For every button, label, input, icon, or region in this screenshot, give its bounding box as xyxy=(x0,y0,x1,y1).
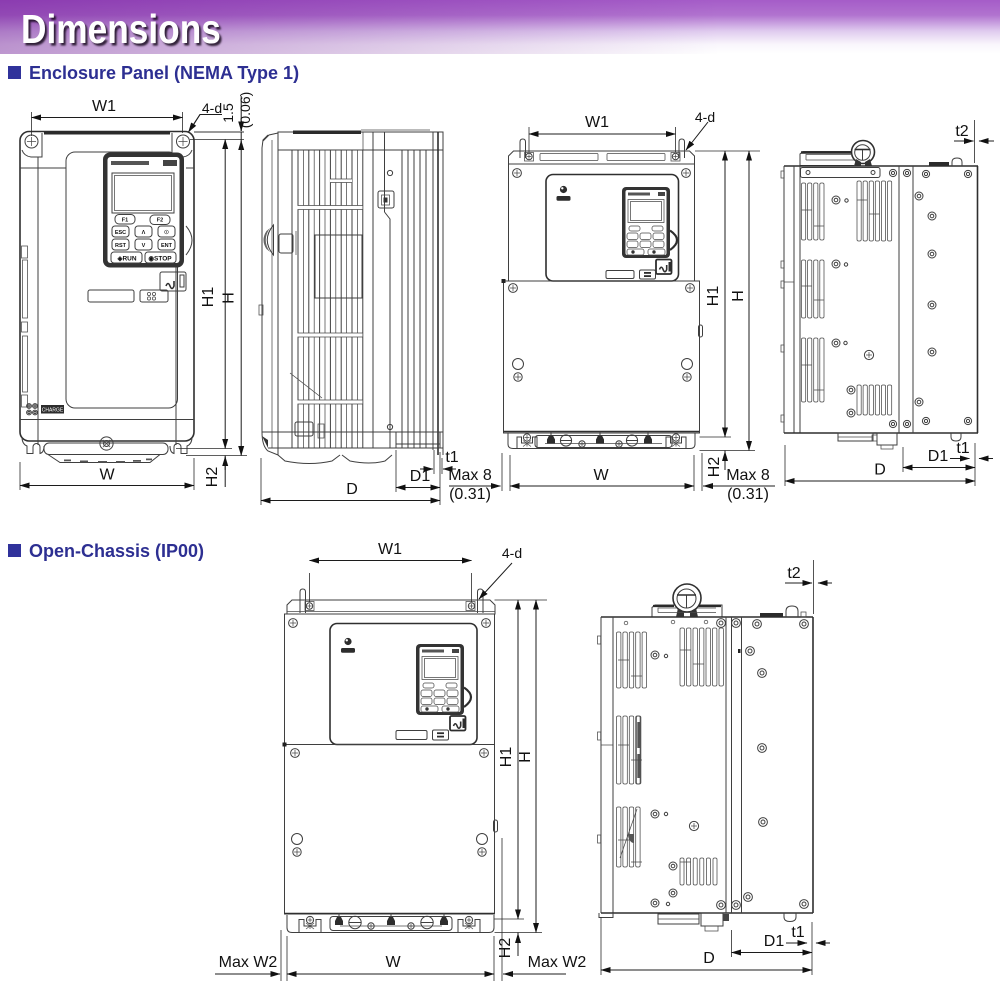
svg-text:D: D xyxy=(703,950,715,967)
svg-text:t1: t1 xyxy=(791,924,804,941)
svg-text:(0.31): (0.31) xyxy=(727,486,769,503)
svg-text:F2: F2 xyxy=(157,218,163,224)
svg-text:V: V xyxy=(142,243,146,249)
svg-text:Max 8: Max 8 xyxy=(448,467,492,484)
svg-text:D: D xyxy=(346,481,358,498)
svg-text:H1: H1 xyxy=(498,747,515,768)
svg-text:D: D xyxy=(874,462,886,479)
svg-text:t1: t1 xyxy=(956,440,969,457)
svg-text:ENT: ENT xyxy=(161,243,173,249)
svg-text:t2: t2 xyxy=(787,565,800,582)
svg-text:4-d: 4-d xyxy=(502,545,522,561)
svg-text:ESC: ESC xyxy=(115,230,126,236)
svg-text:H: H xyxy=(221,292,238,304)
svg-text:t2: t2 xyxy=(955,123,968,140)
svg-text:D1: D1 xyxy=(410,468,431,485)
svg-text:H2: H2 xyxy=(706,457,723,478)
svg-text:H2: H2 xyxy=(497,938,514,959)
svg-text:1.5: 1.5 xyxy=(220,103,236,123)
svg-text:Max W2: Max W2 xyxy=(219,954,278,971)
svg-text:D1: D1 xyxy=(928,448,949,465)
svg-text:H2: H2 xyxy=(204,467,221,488)
svg-text:(0.31): (0.31) xyxy=(449,486,491,503)
svg-text:◉STOP: ◉STOP xyxy=(148,256,172,263)
svg-text:H: H xyxy=(730,290,747,302)
svg-text:t1: t1 xyxy=(445,449,458,466)
svg-text:H1: H1 xyxy=(200,287,217,308)
svg-text:RST: RST xyxy=(115,243,127,249)
svg-text:D1: D1 xyxy=(764,933,785,950)
svg-text:Λ: Λ xyxy=(142,230,146,236)
svg-text:Max 8: Max 8 xyxy=(726,467,770,484)
svg-text:W1: W1 xyxy=(92,98,116,115)
svg-text:4-d: 4-d xyxy=(695,109,715,125)
svg-text:W1: W1 xyxy=(585,114,609,131)
svg-text:(0.06): (0.06) xyxy=(237,92,253,129)
svg-text:☉: ☉ xyxy=(164,229,169,236)
svg-text:CHARGE: CHARGE xyxy=(42,407,64,413)
svg-text:W: W xyxy=(99,467,115,484)
svg-text:◈RUN: ◈RUN xyxy=(116,256,136,263)
svg-text:Max W2: Max W2 xyxy=(528,954,587,971)
svg-text:H: H xyxy=(517,751,534,763)
svg-text:W1: W1 xyxy=(378,541,402,558)
svg-text:F1: F1 xyxy=(122,218,128,224)
svg-text:W: W xyxy=(385,954,401,971)
svg-text:W: W xyxy=(593,467,609,484)
svg-text:H1: H1 xyxy=(705,286,722,307)
